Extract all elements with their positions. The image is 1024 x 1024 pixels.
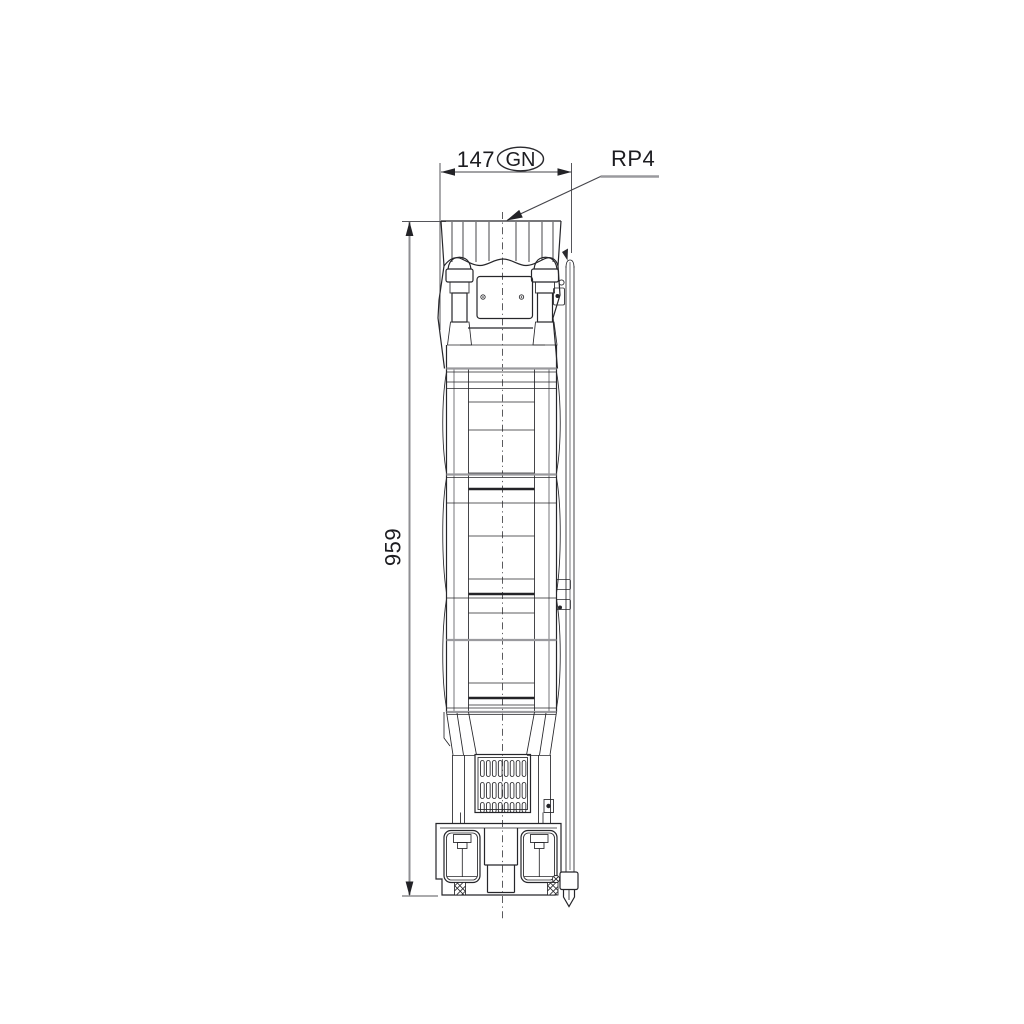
head-section xyxy=(438,257,565,368)
motor-pad-left xyxy=(444,831,480,883)
discharge-section xyxy=(441,221,561,266)
pump-drawing xyxy=(436,221,578,907)
width-dimension-value: 147 xyxy=(457,147,495,172)
cable-guard-top-left xyxy=(446,257,473,345)
guard-bulge-curves xyxy=(443,372,561,708)
guard-cap-neck xyxy=(450,282,469,293)
cable-tip-barb xyxy=(562,249,568,261)
dimension-arrow-up xyxy=(406,222,414,237)
guard-cap-collar xyxy=(532,269,559,282)
dimension-arrow-left xyxy=(441,168,455,176)
pad-tab-small xyxy=(535,843,545,849)
pad-tab-small xyxy=(458,843,468,849)
connection-label: RP4 xyxy=(611,146,655,171)
cable-entry xyxy=(554,280,565,305)
cable-clamp-tabs xyxy=(557,580,571,610)
clamp-screw xyxy=(558,606,562,610)
strainer-slots xyxy=(481,761,526,813)
motor-hatch-right xyxy=(548,883,559,896)
guard-cap-neck xyxy=(536,282,555,293)
guard-cap-collar xyxy=(446,269,473,282)
callout-arrowhead xyxy=(507,210,523,221)
pad-tab xyxy=(454,835,472,843)
dimension-arrow-down xyxy=(406,882,414,897)
stage-joints-thick xyxy=(469,489,535,698)
callout-leader-line xyxy=(508,177,601,221)
width-dimension: 147 GN xyxy=(440,147,572,330)
height-dimension-value: 959 xyxy=(381,528,406,566)
width-dimension-badge: GN xyxy=(506,149,536,171)
strainer-clamp xyxy=(544,800,554,813)
motor-hatch-left xyxy=(455,883,466,896)
motor-center-column xyxy=(485,828,518,893)
guard-flare xyxy=(448,322,472,345)
pad-tab xyxy=(531,835,549,843)
stage-joints-gray xyxy=(447,369,557,713)
stage-joints-full xyxy=(447,372,557,715)
transition-slants xyxy=(444,712,557,755)
motor-pad-right xyxy=(521,831,557,883)
clamp-screw xyxy=(546,804,550,808)
guard-post xyxy=(538,293,553,322)
plug-body xyxy=(560,872,578,890)
stage-joints-inner xyxy=(469,402,535,705)
nameplate-screw-dot xyxy=(482,296,484,298)
technical-drawing: 147 GN 959 RP4 xyxy=(0,0,1024,1024)
head-left-edge xyxy=(438,266,445,369)
wavy-joint-line xyxy=(444,258,558,266)
dimension-arrow-right xyxy=(558,168,572,176)
suction-section xyxy=(444,712,557,823)
cable-clamp-upper xyxy=(557,580,571,590)
guard-post xyxy=(452,293,467,322)
nameplate xyxy=(477,277,533,319)
chamber-stack xyxy=(443,345,571,715)
nameplate-screw-dot xyxy=(521,296,523,298)
height-dimension: 959 xyxy=(381,222,447,897)
motor-section xyxy=(436,824,561,896)
clamp-screw xyxy=(556,294,560,298)
